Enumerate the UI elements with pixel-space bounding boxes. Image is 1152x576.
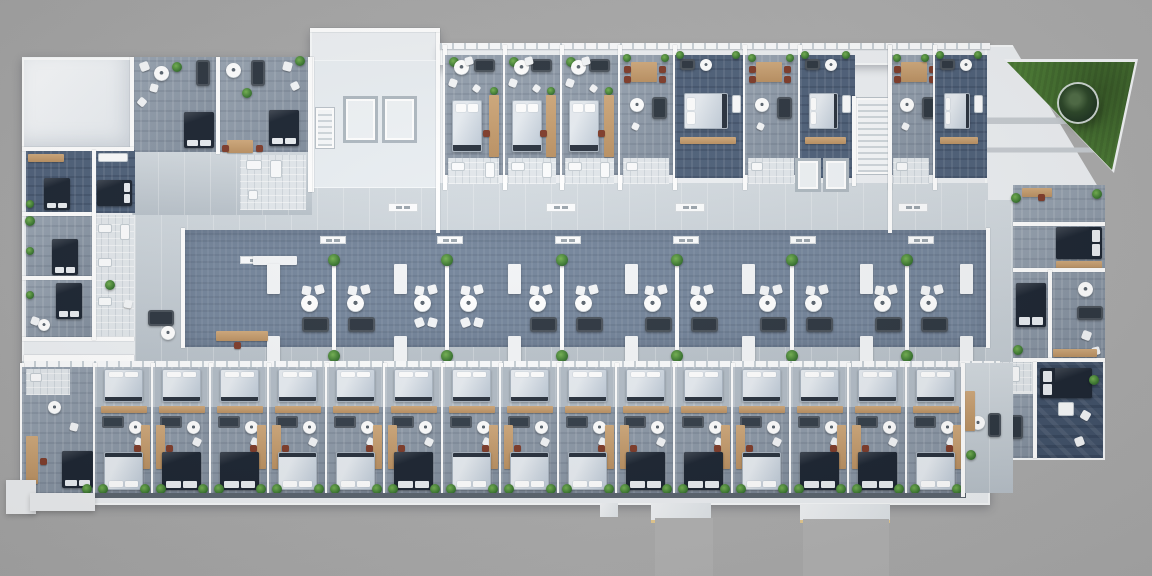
unit-bottom-16 [907,363,965,497]
pillow [456,104,466,113]
wall [310,28,440,32]
pillow [124,183,130,192]
pillows [569,479,606,489]
bed-light [916,369,955,402]
bed-dark [394,452,433,490]
vent-grille [437,236,463,244]
wall [436,30,440,233]
bed-body [453,379,490,398]
dining-chair [784,66,791,73]
sofa [760,317,787,332]
pillows [220,479,259,490]
pillow [398,481,412,488]
vent-grille [320,236,346,244]
wood [756,62,782,82]
vent-slot [334,239,340,242]
bed-dark [184,112,214,148]
pillow [167,372,180,377]
pillows [394,479,433,490]
bed-footboard [834,94,837,128]
wall [852,96,856,186]
round-table [709,421,722,434]
sofa [652,97,667,119]
dining-chair [366,445,373,452]
plant-icon [786,54,794,62]
bed-light [569,100,599,152]
plant-icon [1089,375,1099,385]
vent-grille [673,236,699,244]
pillows [511,370,548,379]
bed-footboard [453,397,490,401]
bed-dark [858,452,897,490]
wood [101,406,147,413]
dining-chair [894,76,901,83]
round-table [301,295,318,312]
pillow [573,481,586,487]
bed-body [800,452,839,479]
pillow [879,481,893,488]
pillow [589,481,602,487]
round-table [303,421,316,434]
bed-dark [800,452,839,490]
unit-bottom-10 [559,363,617,497]
unit-bottom-15 [849,363,907,497]
pillow [647,372,660,377]
courtyard-divider [790,266,794,350]
bed-body [917,457,954,479]
plant-icon [671,254,683,266]
wood [26,436,38,484]
wood [805,137,846,144]
fix [974,95,983,113]
bed-body [626,452,665,479]
pillow [804,481,818,488]
pillow [1043,384,1052,395]
bed-dark [269,110,299,146]
bench [508,264,521,294]
vent-slot [561,239,567,242]
sofa [576,317,603,332]
round-table [825,59,837,71]
bed-body [1056,227,1089,259]
plant-icon [295,56,305,66]
round-table [361,421,374,434]
pillow [109,372,122,377]
bed-dark [52,239,78,275]
dining-chair [830,445,837,452]
bed-body [513,115,541,145]
entry-apron [30,493,95,511]
unit-bottom-6 [327,363,385,497]
pillow [631,372,644,377]
courtyard-divider [445,266,449,350]
pillows [800,479,839,490]
fix [1058,402,1074,416]
dining-chair [40,458,47,465]
bed-footboard [966,94,969,128]
plant-icon [748,54,756,62]
pillows [337,479,374,489]
unit-top-9 [935,45,987,233]
bed-footboard [221,397,258,401]
wood [546,95,556,157]
sofa [645,317,672,332]
pillows [44,201,70,210]
bed-body [743,457,780,479]
pillows [945,94,952,128]
pillows [453,370,490,379]
plant-icon [328,254,340,266]
pillow [946,98,950,110]
dining-chair [166,445,173,452]
wood [391,406,437,413]
pillow [705,481,719,488]
pillow [1092,244,1100,256]
wood [275,406,321,413]
pillows [1016,315,1046,327]
fix [98,224,112,233]
pillow [946,112,950,124]
bed-light [684,369,723,402]
plant-icon [490,87,498,95]
elevator-shaft [382,96,417,143]
pillows [570,101,598,115]
pillows [395,370,432,379]
bed-dark [162,452,201,490]
fix [600,162,610,178]
round-table [529,295,546,312]
plant-icon [842,51,850,59]
pillows [684,479,723,490]
bed-body [97,180,122,206]
pillow [630,481,644,488]
bed-light [104,452,143,490]
pillows [810,94,818,128]
round-table [759,295,776,312]
sofa [940,59,955,70]
dining-chair [714,445,721,452]
pillows [513,101,541,115]
courtyard-divider [905,266,909,350]
plant-icon [556,254,568,266]
unit-top-5 [675,45,745,233]
pillow [747,372,760,377]
bed-footboard [163,397,200,401]
dresser [798,416,820,428]
wood [1022,188,1052,197]
pillow [1032,317,1043,325]
pillows [627,370,664,379]
vent-slot [451,239,457,242]
bed-light [916,452,955,490]
pillow [811,112,816,124]
wood [449,406,495,413]
vent-slot [687,239,693,242]
dining-chair [598,445,605,452]
dining-chair [598,130,605,137]
round-table [414,295,431,312]
pillows [52,265,78,275]
fix [120,224,130,240]
pillow [224,481,238,488]
pillow [647,481,661,488]
round-table [154,66,169,81]
pillow [299,481,312,487]
unit-top-1 [445,45,505,233]
wall [308,57,312,192]
wood [216,331,268,341]
bed-light [568,369,607,402]
dining-chair [482,445,489,452]
bed-light [278,452,317,490]
bed-body [453,457,490,479]
bench [267,264,280,294]
wall [92,150,96,340]
pillows [917,479,954,489]
sofa [474,59,495,72]
bed-body [56,283,82,309]
wood [797,406,843,413]
bed-footboard [859,397,896,401]
sofa [148,310,174,326]
bed-dark [1040,368,1092,398]
fix [732,95,741,113]
wall [1013,268,1105,272]
pillow [687,98,694,110]
bed-body [52,239,78,265]
pillow [862,481,876,488]
chair-white [123,299,132,308]
bed-body [44,178,70,201]
pillows [743,479,780,489]
bed-light [278,369,317,402]
bench [394,264,407,294]
bed-footboard [801,397,838,401]
round-table [700,59,712,71]
round-table [644,295,661,312]
pillows [858,479,897,490]
bed-dark [56,283,82,319]
pillow [1043,371,1052,382]
bed-body [858,452,897,479]
pillow [811,98,816,110]
plant-icon [172,62,182,72]
wood [901,62,927,82]
bed-footboard [722,94,727,128]
courtyard-divider [332,266,336,350]
pillow [921,481,934,487]
wall [130,57,134,154]
courtyard-divider [560,266,564,350]
ground-path [655,518,713,576]
pillow [879,372,892,377]
sofa [251,60,265,86]
dining-chair [514,445,521,452]
bed-footboard [511,397,548,401]
pillows [163,370,200,379]
pillows [626,479,665,490]
staircase [316,108,334,148]
fix [270,160,282,178]
bed-body [743,379,780,398]
wall [1013,222,1105,226]
unit-bottom-8 [443,363,501,497]
bench [960,264,973,294]
dining-chair [862,445,869,452]
pillows [743,370,780,379]
round-table [161,326,175,340]
bed-body [511,379,548,398]
bench [625,264,638,294]
bed-light [162,369,201,402]
pillow [285,138,296,144]
vent-slot [326,239,332,242]
dresser [682,416,704,428]
bed-footboard [395,397,432,401]
pillow [573,372,586,377]
elevator-shaft [343,96,378,143]
wood [28,154,64,162]
wall [22,212,94,216]
pillow [473,372,486,377]
pillow [59,311,68,317]
bed-footboard [917,397,954,401]
bed-light [944,93,970,129]
bed-body [859,379,896,398]
round-table [883,421,896,434]
pillow [125,372,138,377]
wood [507,406,553,413]
plant-icon [26,291,34,299]
pillow [821,372,834,377]
pillow [573,104,583,113]
sofa [680,59,695,70]
dining-chair [234,342,241,349]
pillows [337,370,374,379]
plant-icon [105,280,115,290]
bed-body [1016,283,1046,315]
pillow [415,481,429,488]
bed-light [512,100,542,152]
unit-top-7 [800,45,855,233]
unit-bottom-4 [211,363,269,497]
vent-grille [790,236,816,244]
sofa [530,317,557,332]
pillow [187,140,198,146]
dining-chair [659,66,666,73]
plant-icon [1092,189,1102,199]
bed-body [162,452,201,479]
pillow [109,481,122,487]
pillow [515,481,528,487]
dresser [102,416,124,428]
round-table [960,59,972,71]
wood [489,95,499,157]
sofa [777,97,792,119]
bed-footboard [105,397,142,401]
round-table [38,319,50,331]
dresser [450,416,472,428]
dining-chair [1038,194,1045,201]
fix [485,162,495,178]
pillows [279,370,316,379]
pillow [516,104,526,113]
vent-slot [404,206,410,209]
bed-light [568,452,607,490]
dresser [566,416,588,428]
bed-body [163,379,200,398]
pillows [1040,368,1055,398]
pillow [399,372,412,377]
pillows [453,101,481,115]
plant-icon [441,254,453,266]
elevator-shaft [823,158,849,192]
unit-bottom-1 [22,363,95,497]
pillow [1092,230,1100,242]
pillows [269,136,299,146]
wall [1048,270,1052,358]
pillow [473,481,486,487]
unit-top-8 [890,45,935,233]
plant-icon [966,450,976,460]
bed-body [952,94,966,128]
bed-body [818,94,834,128]
bed-footboard [743,397,780,401]
bed-body [220,452,259,479]
fix [98,297,112,306]
dining-chair [746,445,753,452]
sofa [691,317,718,332]
fix [626,162,638,171]
wall [22,276,94,280]
pillow [183,372,196,377]
fix [542,162,552,178]
round-table [825,421,838,434]
wall [1033,362,1037,458]
dining-chair [659,76,666,83]
pillow [531,372,544,377]
dining-chair [222,145,229,152]
round-table [593,421,606,434]
sofa [302,317,329,332]
bed-body [801,379,838,398]
courtyard-divider [675,266,679,350]
sofa [531,59,552,72]
pillows [279,479,316,489]
bed-footboard [337,397,374,401]
bed-dark [684,452,723,490]
bed-body [453,115,481,145]
plant-icon [901,254,913,266]
round-table [460,295,477,312]
pillow [341,481,354,487]
round-table [630,98,644,112]
sofa [875,317,902,332]
plant-icon [921,54,929,62]
sofa [348,317,375,332]
bed-light [800,369,839,402]
fix [568,162,582,171]
pillow [763,481,776,487]
pillow [65,480,76,486]
bed-dark [1016,283,1046,327]
pillow [241,372,254,377]
sofa [988,413,1001,437]
round-table [941,421,954,434]
pillow [66,267,75,273]
vent-slot [796,239,802,242]
bed-body [1055,368,1092,398]
